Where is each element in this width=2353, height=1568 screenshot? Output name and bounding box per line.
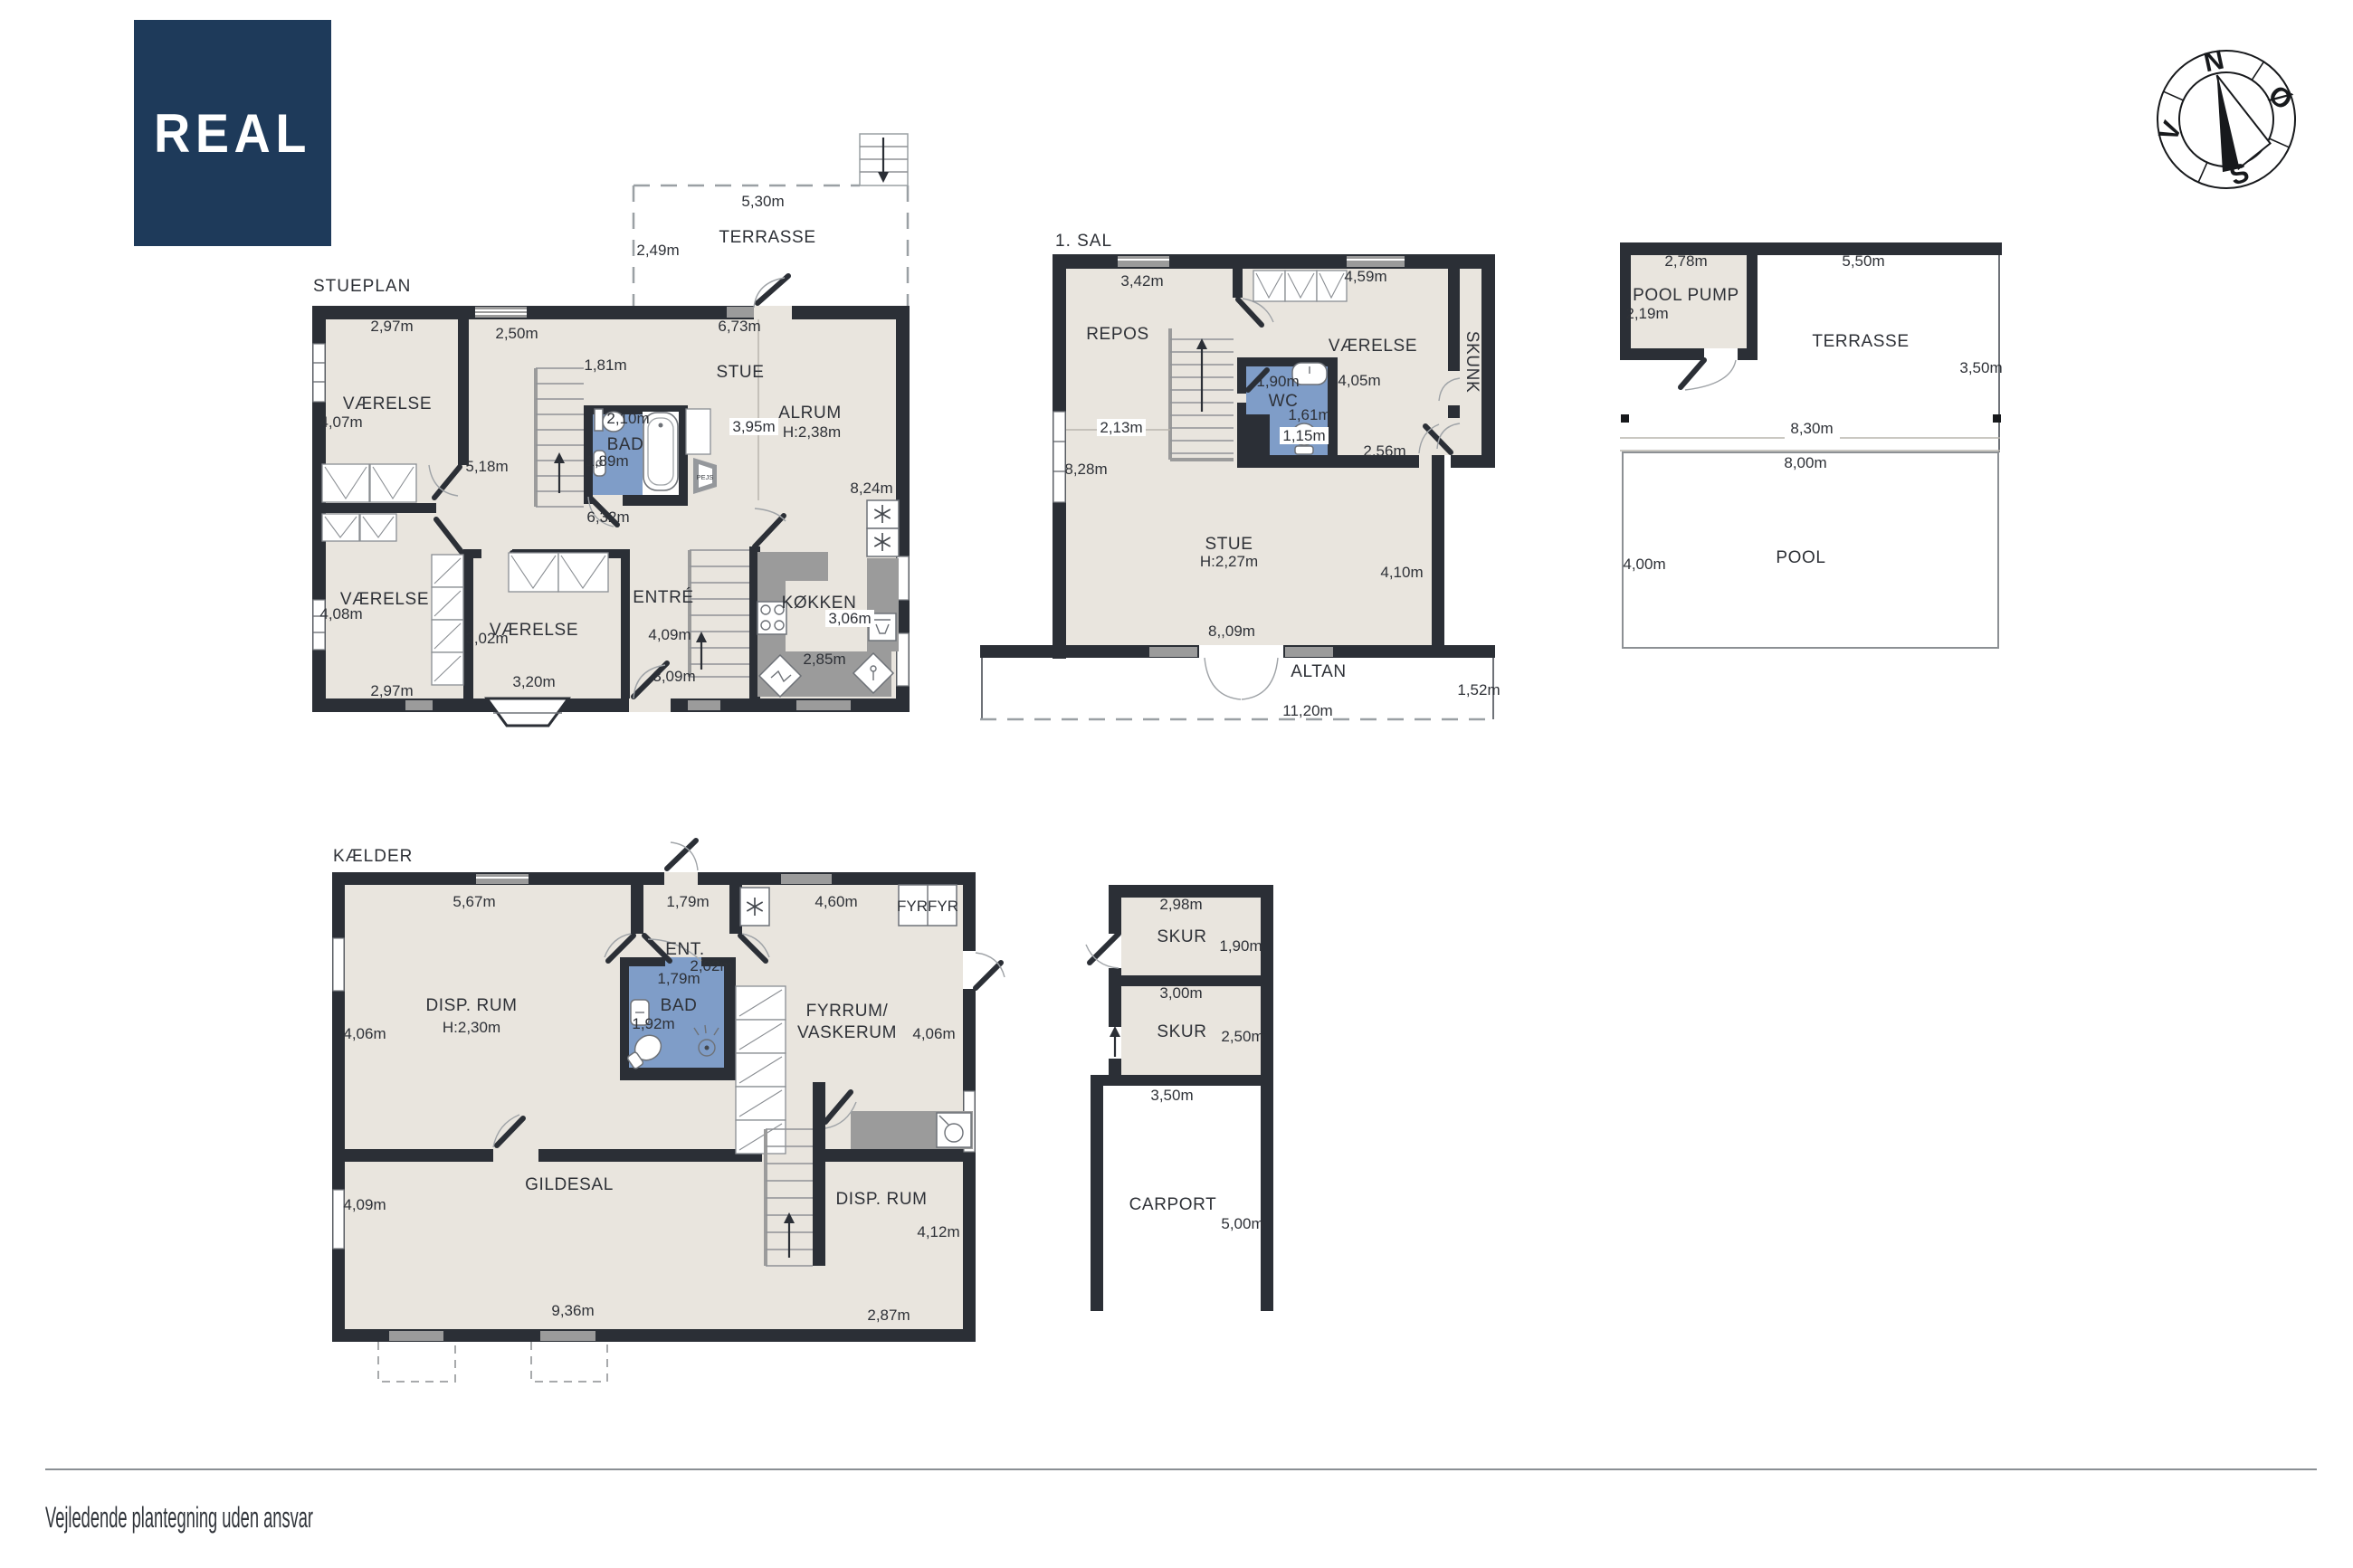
outbuildings: 2,98m SKUR 1,90m 3,00m SKUR 2,50m 3,50m …: [1086, 885, 1273, 1311]
dim: 3,50m: [1150, 1087, 1193, 1104]
room-label: STUE: [716, 363, 764, 382]
room-label-skunk: SKUNK: [1462, 331, 1481, 393]
dim: 4,06m: [912, 1025, 955, 1042]
room-label: BAD: [607, 435, 644, 454]
dim: 1,52m: [1457, 681, 1500, 698]
pejs-label: PEJS: [697, 473, 714, 481]
kaelder-floor: [345, 885, 963, 1329]
dim: 8,24m: [850, 480, 892, 497]
room-label: FYRRUM/: [806, 1002, 889, 1021]
room-label: VÆRELSE: [343, 394, 432, 413]
dim: 1,79m: [666, 893, 709, 910]
dim: 2,97m: [370, 682, 413, 699]
dim: 8,,09m: [1208, 622, 1255, 640]
terrasse-depth-dim: 2,49m: [636, 242, 679, 259]
room-label: DISP. RUM: [835, 1190, 927, 1209]
dim: 3,00m: [1159, 984, 1202, 1002]
room-label: ENTRÉ: [633, 588, 693, 607]
compass-rose: N Ø S V: [2139, 31, 2316, 205]
floor-kaelder: KÆLDER: [332, 841, 1005, 1382]
terrasse-width-dim: 5,30m: [741, 193, 784, 210]
dim: 2,78m: [1664, 252, 1707, 270]
room-label: POOL: [1776, 548, 1825, 567]
dim: 2,97m: [370, 318, 413, 335]
dim: 8,00m: [1784, 454, 1826, 471]
boiler-box: FYRFYR: [897, 885, 958, 926]
logo-text: REAL: [154, 103, 311, 164]
room-label: CARPORT: [1129, 1195, 1217, 1214]
dim: H:2,30m: [443, 1019, 500, 1036]
floorplan-sheet: REAL N Ø S V STUEPLAN: [0, 0, 2353, 1568]
dim: H:2,38m: [783, 423, 841, 441]
room-label: SKUR: [1157, 1022, 1206, 1041]
fyr-label: FYRFYR: [897, 898, 958, 915]
dim: 4,09m: [343, 1196, 386, 1213]
floor-stueplan: STUEPLAN 5,30m TERRASSE 2,49m: [312, 134, 910, 726]
dim: 4,00m: [1623, 556, 1665, 573]
room-label: REPOS: [1086, 325, 1149, 344]
footer-disclaimer: Vejledende plantegning uden ansvar: [45, 1501, 313, 1534]
room-label: ALTAN: [1291, 662, 1346, 681]
dim: 1,81m: [584, 356, 626, 374]
window-well: [378, 1342, 455, 1382]
brand-logo: REAL: [134, 20, 331, 246]
dim: 11,20m: [1282, 702, 1332, 719]
laundry-counter: [851, 1111, 973, 1149]
dim: 3,20m: [512, 673, 555, 690]
1sal-altan: [980, 658, 1495, 719]
dim: 4,10m: [1380, 564, 1423, 581]
dim: 3,50m: [1959, 359, 2002, 376]
dim: 1,90m: [1256, 373, 1299, 390]
stueplan-terrasse: 5,30m TERRASSE 2,49m: [633, 134, 908, 306]
dim: 2,56m: [1363, 442, 1405, 460]
dim: 2,87m: [867, 1307, 910, 1324]
floor-1sal: 1. SAL: [980, 232, 1500, 719]
dim: 2,13m: [1100, 419, 1142, 436]
dim: 5,18m: [465, 458, 508, 475]
dim: 2,50m: [495, 325, 538, 342]
dim: 5,00m: [1221, 1215, 1263, 1232]
dim: 4,60m: [814, 893, 857, 910]
room-label: STUE: [1205, 535, 1253, 554]
dim: 1,79m: [657, 970, 700, 987]
dim: 2,85m: [803, 651, 845, 668]
window-well: [531, 1342, 607, 1382]
dim: 3,09m: [653, 668, 695, 685]
dim: 2,98m: [1159, 896, 1202, 913]
kaelder-closets: [736, 986, 786, 1154]
dim: H:2,27m: [1200, 553, 1258, 570]
dim: 4,59m: [1344, 268, 1386, 285]
dim: 6,32m: [586, 508, 629, 526]
room-label: VASKERUM: [797, 1023, 897, 1042]
dim: 4,08m: [319, 605, 362, 622]
room-label: SKUR: [1157, 927, 1206, 946]
room-label: GILDESAL: [525, 1175, 614, 1194]
dim: 5,67m: [452, 893, 495, 910]
room-label: ENT.: [665, 940, 705, 959]
dim: 2,19m: [1625, 305, 1668, 322]
terrasse-label: TERRASSE: [719, 228, 815, 247]
dim: 3,02m: [465, 630, 508, 647]
dim: 1,92m: [632, 1015, 674, 1032]
dim: 3,95m: [732, 418, 775, 435]
dim: 4,12m: [917, 1223, 959, 1240]
dim: 4,07m: [319, 413, 362, 431]
dim: 3,42m: [1120, 272, 1163, 290]
room-label: BAD: [661, 996, 698, 1015]
dim: 1,90m: [1219, 937, 1262, 955]
room-label: POOL PUMP: [1633, 286, 1739, 305]
room-label: TERRASSE: [1812, 332, 1909, 351]
pool-area: 2,78m POOL PUMP 2,19m 5,50m TERRASSE 3,5…: [1620, 242, 2003, 648]
dim: 2,10m: [606, 410, 649, 427]
dim: 4,09m: [648, 626, 691, 643]
room-label: VÆRELSE: [1329, 337, 1417, 356]
1sal-wardrobe: [1253, 271, 1347, 301]
dim: 8,28m: [1064, 461, 1107, 478]
kaelder-title: KÆLDER: [333, 847, 413, 866]
dim: 6,73m: [718, 318, 760, 335]
room-label: DISP. RUM: [425, 996, 517, 1015]
dim: 3,06m: [828, 610, 871, 627]
dim: 9,36m: [551, 1302, 594, 1319]
dim: 2,50m: [1221, 1028, 1263, 1045]
toilet-icon: [595, 409, 603, 431]
stueplan-bay-window: [487, 698, 568, 726]
stueplan-title: STUEPLAN: [313, 277, 411, 296]
dim: 1,61m: [1288, 406, 1330, 423]
1sal-title: 1. SAL: [1055, 232, 1112, 251]
dim: 4,06m: [343, 1025, 386, 1042]
dim: 1,15m: [1282, 427, 1325, 444]
dim: 5,50m: [1842, 252, 1884, 270]
room-label: ALRUM: [778, 404, 842, 423]
cabinet: [686, 409, 710, 454]
dim: 1,89m: [586, 452, 628, 470]
dim: 4,05m: [1338, 372, 1380, 389]
footer: Vejledende plantegning uden ansvar: [45, 1469, 2317, 1534]
dim: 8,30m: [1790, 420, 1833, 437]
